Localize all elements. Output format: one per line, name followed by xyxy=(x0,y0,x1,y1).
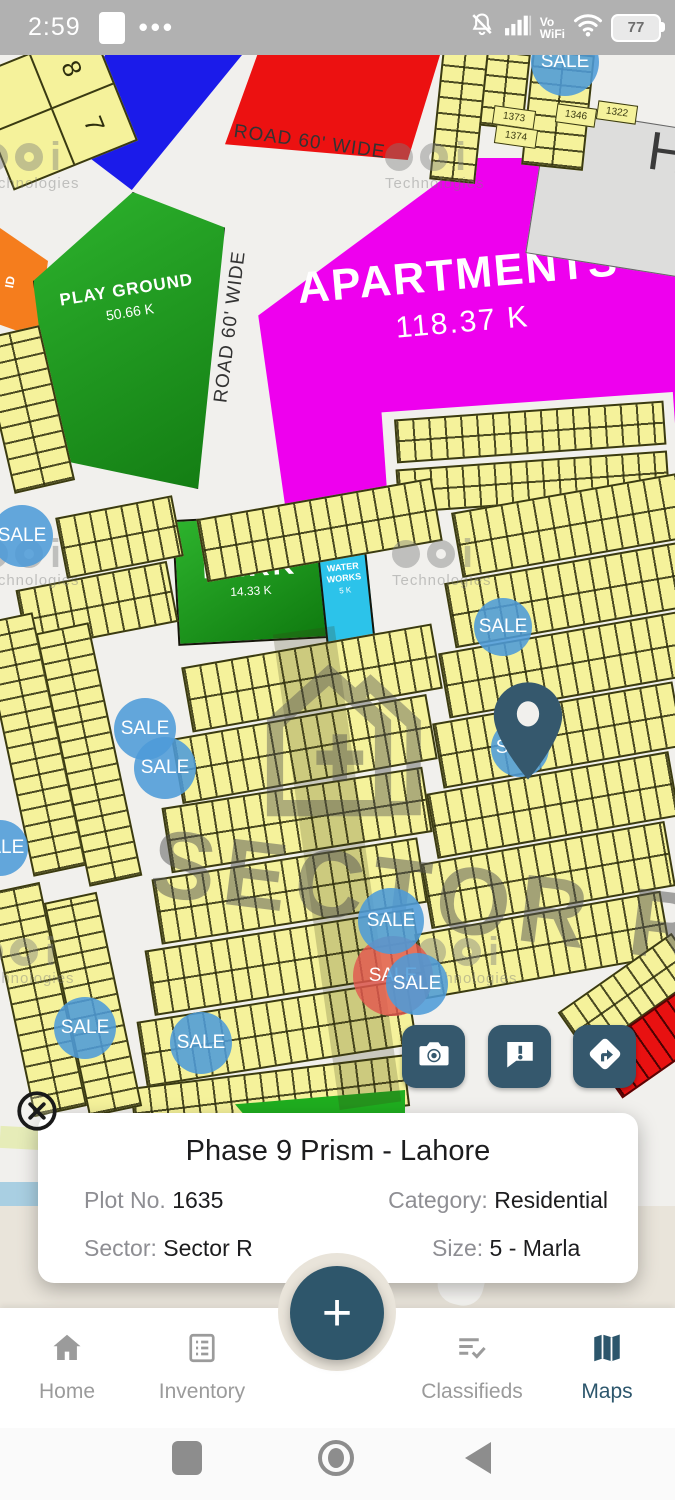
plot-number: 7 xyxy=(77,112,111,137)
size-field: Size: 5 - Marla xyxy=(432,1235,580,1262)
inventory-icon xyxy=(184,1330,220,1372)
sale-marker[interactable]: SALE xyxy=(170,1012,232,1074)
maps-icon xyxy=(589,1330,625,1372)
report-button[interactable] xyxy=(488,1025,551,1088)
camera-icon xyxy=(415,1035,453,1078)
waterworks-name: WATER WORKS xyxy=(318,560,368,587)
ioi-watermark: i Technologies xyxy=(385,143,485,192)
bell-muted-icon xyxy=(468,11,496,44)
nav-item-maps[interactable]: Maps xyxy=(547,1330,667,1404)
plot-no-field: Plot No. 1635 xyxy=(84,1187,340,1214)
camera-button[interactable] xyxy=(402,1025,465,1088)
clock: 2:59 xyxy=(28,13,81,42)
notification-app-icon xyxy=(99,12,125,44)
sale-marker[interactable]: SALE xyxy=(134,737,196,799)
close-card-button[interactable] xyxy=(14,1088,60,1134)
plus-icon: + xyxy=(322,1283,352,1343)
volte-indicator: Vo WiFi xyxy=(540,16,565,40)
close-icon xyxy=(14,1121,60,1138)
ioi-watermark: i Technologies xyxy=(392,540,492,589)
android-back-button[interactable] xyxy=(465,1442,491,1474)
sale-marker[interactable]: SALE xyxy=(474,598,532,656)
category-field: Category: Residential xyxy=(388,1187,608,1214)
android-home-button[interactable] xyxy=(318,1440,354,1476)
directions-icon xyxy=(585,1034,625,1079)
more-notifications-icon: ••• xyxy=(139,12,175,43)
nav-item-home[interactable]: Home xyxy=(7,1330,127,1404)
waterworks-label: WATER WORKS 5 K xyxy=(318,560,369,598)
signal-icon xyxy=(504,13,532,42)
ioi-watermark: i Technologies xyxy=(0,143,80,192)
sale-marker[interactable]: SALE xyxy=(358,888,424,954)
home-icon xyxy=(49,1330,85,1372)
wifi-icon xyxy=(573,13,603,43)
android-recents-button[interactable] xyxy=(172,1441,202,1475)
app-screen: ID 8 7 PLAY GROUND 50.66 K APARTMENTS 11… xyxy=(0,0,675,1500)
ioi-watermark: i Technologies xyxy=(0,938,75,987)
navigate-button[interactable] xyxy=(573,1025,636,1088)
add-button[interactable]: + xyxy=(290,1266,384,1360)
classifieds-icon xyxy=(454,1330,490,1372)
orange-zone-label: ID xyxy=(2,275,18,289)
nav-item-inventory[interactable]: Inventory xyxy=(142,1330,262,1404)
sale-marker[interactable]: SALE xyxy=(54,997,116,1059)
sale-marker[interactable]: SALE xyxy=(386,953,448,1015)
location-pin[interactable] xyxy=(492,680,564,782)
status-bar: 2:59 ••• Vo WiFi xyxy=(0,0,675,55)
card-title: Phase 9 Prism - Lahore xyxy=(38,1135,638,1168)
nav-item-classifieds[interactable]: Classifieds xyxy=(412,1330,532,1404)
battery-indicator: 77 xyxy=(611,14,661,42)
chat-alert-icon xyxy=(502,1036,538,1077)
brand-house-watermark xyxy=(248,640,428,825)
plot-number: 8 xyxy=(55,56,89,81)
